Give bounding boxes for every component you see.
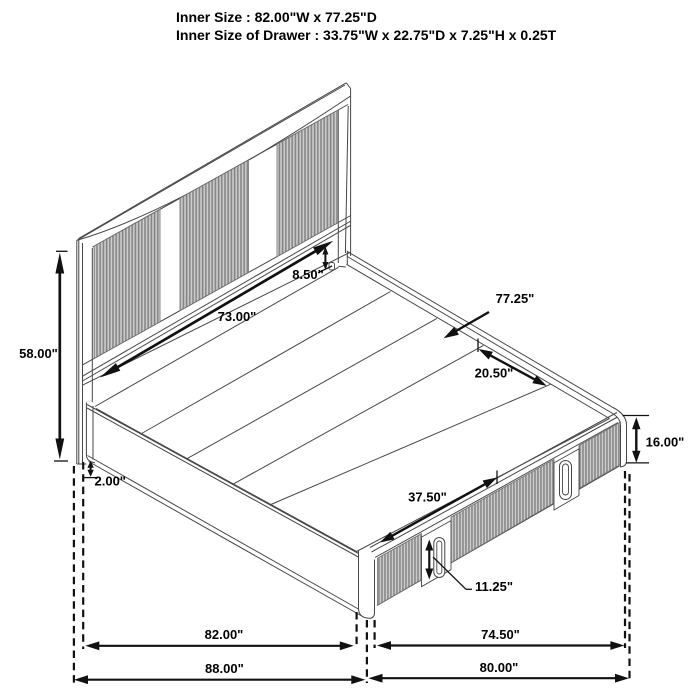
svg-text:82.00": 82.00": [205, 627, 244, 642]
svg-text:88.00": 88.00": [205, 661, 244, 676]
svg-text:80.00": 80.00": [480, 660, 519, 675]
svg-text:16.00": 16.00": [646, 435, 685, 450]
svg-text:73.00": 73.00": [218, 309, 257, 324]
svg-text:8.50": 8.50": [292, 267, 323, 282]
svg-text:Inner Size : 82.00"W x 77.25"D: Inner Size : 82.00"W x 77.25"D: [176, 9, 377, 25]
svg-text:74.50": 74.50": [481, 627, 520, 642]
svg-text:77.25": 77.25": [496, 291, 535, 306]
svg-text:Inner Size of Drawer : 33.75"W: Inner Size of Drawer : 33.75"W x 22.75"D…: [176, 27, 557, 43]
svg-text:20.50": 20.50": [475, 366, 514, 381]
svg-text:11.25": 11.25": [475, 579, 513, 594]
svg-text:37.50": 37.50": [408, 490, 447, 505]
svg-text:58.00": 58.00": [19, 346, 58, 361]
svg-text:2.00": 2.00": [95, 474, 126, 489]
